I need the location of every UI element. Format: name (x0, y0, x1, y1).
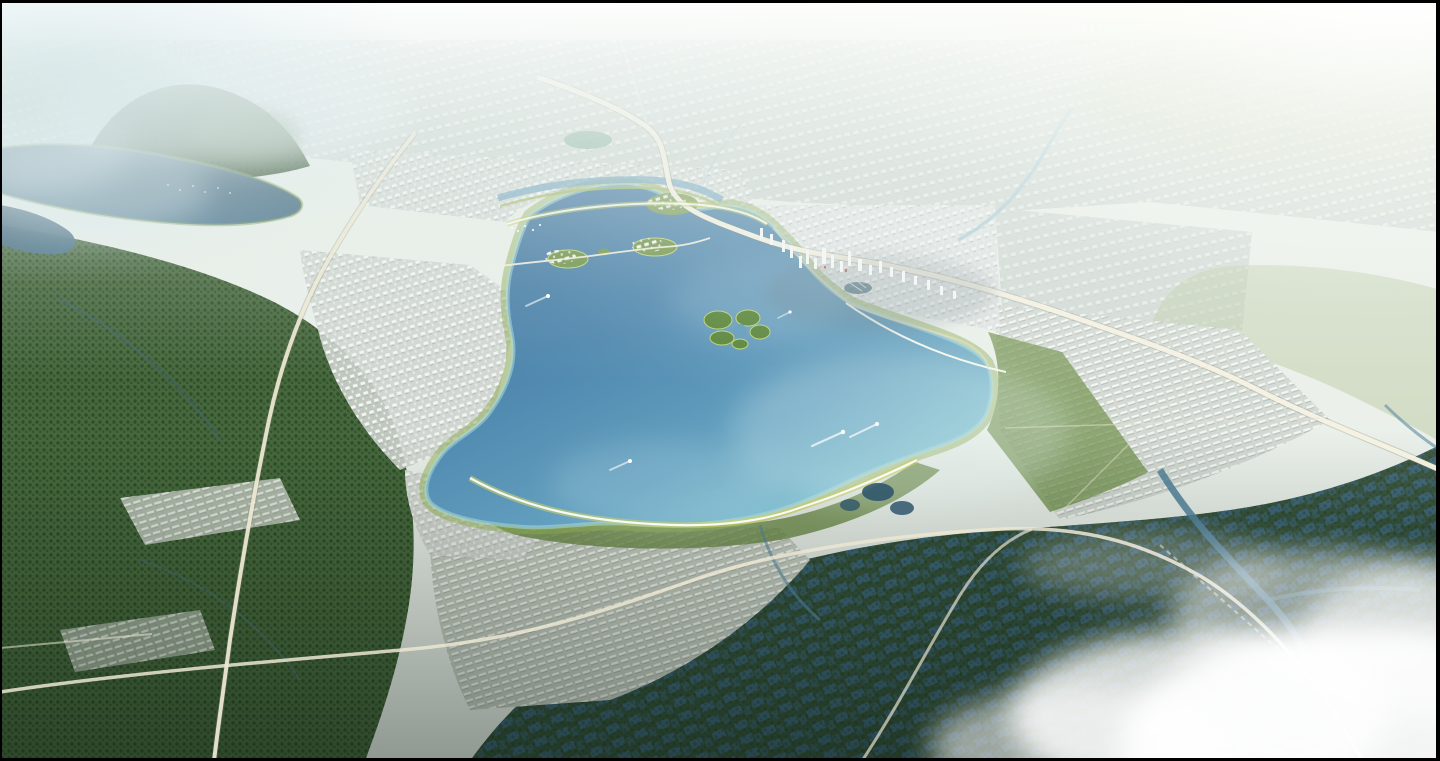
scene-svg (0, 0, 1440, 761)
aerial-city-rendering (0, 0, 1440, 761)
screenshot-canvas (0, 0, 1440, 761)
frame-top (0, 0, 1440, 3)
frame-right (1436, 0, 1440, 761)
frame-left (0, 0, 2, 761)
